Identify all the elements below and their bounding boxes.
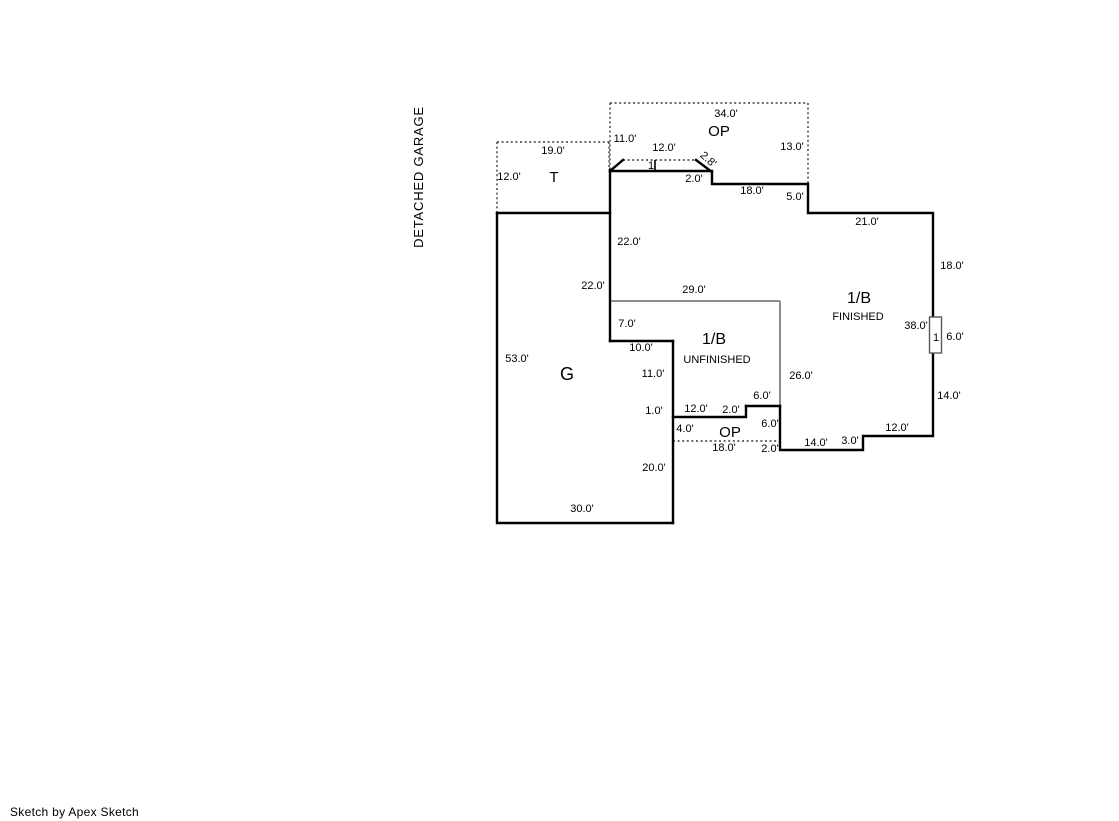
floorplan-canvas: 19.0' 12.0' 34.0' 11.0' 12.0' 13.0' 2.8'… [0,0,1119,821]
dim-top-edge: 21.0' [855,216,879,228]
dim-unfinished-top: 29.0' [682,284,706,296]
dim-t-top: 19.0' [541,145,565,157]
dim-bottom-step: 3.0' [841,435,858,447]
dim-bay-top: 12.0' [652,142,676,154]
dim-op-top-left: 11.0' [614,133,637,145]
dim-garage-bottom: 30.0' [570,503,594,515]
area-label-garage: G [560,364,574,384]
dim-porch-right-lower: 2.0' [761,443,778,455]
dim-porch-right-upper: 6.0' [761,418,778,430]
feature-markers: 1 1 [648,160,939,344]
dim-unfinished-step: 10.0' [629,342,653,354]
dim-unfinished-left: 7.0' [618,318,635,330]
dim-op-top-width: 34.0' [714,108,738,120]
dim-bottom-width: 14.0' [804,437,828,449]
dim-unfinished-left-lower: 11.0' [642,368,665,380]
dim-bay-step: 2.0' [685,173,702,185]
dim-porch-left: 4.0' [676,423,693,435]
dim-right-lower: 14.0' [937,390,961,402]
dim-window-height: 6.0' [946,331,963,343]
dim-top-right-step: 5.0' [786,191,803,203]
dim-top-wall: 18.0' [740,185,764,197]
dim-right-total: 38.0' [904,320,928,332]
dim-garage-left: 53.0' [505,353,529,365]
dim-porch-notch: 1.0' [645,405,662,417]
dim-finished-mid-left: 26.0' [789,370,813,382]
bay-left-slant-wall [610,160,623,171]
area-sublabel-finished: FINISHED [832,311,883,323]
dim-garage-right-lower: 20.0' [642,462,666,474]
detached-garage-label: DETACHED GARAGE [411,106,426,248]
dim-porch-bottom-width: 18.0' [712,442,736,454]
dim-t-left: 12.0' [497,171,521,183]
dim-bay-slant: 2.8' [698,149,719,170]
floorplan-svg: 19.0' 12.0' 34.0' 11.0' 12.0' 13.0' 2.8'… [0,0,1119,821]
bay-marker-label: 1 [648,160,654,172]
window-marker-label: 1 [933,332,939,344]
area-label-finished: 1/B [847,290,871,307]
dim-right-upper: 18.0' [940,260,964,272]
area-sublabel-unfinished: UNFINISHED [683,354,750,366]
dim-garage-right: 22.0' [581,280,605,292]
area-label-open-porch-top: OP [708,123,730,140]
dim-bottom-right-width: 12.0' [885,422,909,434]
dim-porch-step-top: 6.0' [753,390,770,402]
dim-finished-left-upper: 22.0' [617,236,641,248]
dim-op-top-right: 13.0' [780,141,804,153]
area-label-tool-shed: T [549,169,558,186]
area-label-unfinished: 1/B [702,331,726,348]
footer-credit: Sketch by Apex Sketch [10,805,139,819]
dimension-labels: 19.0' 12.0' 34.0' 11.0' 12.0' 13.0' 2.8'… [497,108,964,515]
dim-porch-top-width: 12.0' [684,403,708,415]
dim-porch-step: 2.0' [722,404,739,416]
area-label-open-porch-bottom: OP [719,424,741,441]
